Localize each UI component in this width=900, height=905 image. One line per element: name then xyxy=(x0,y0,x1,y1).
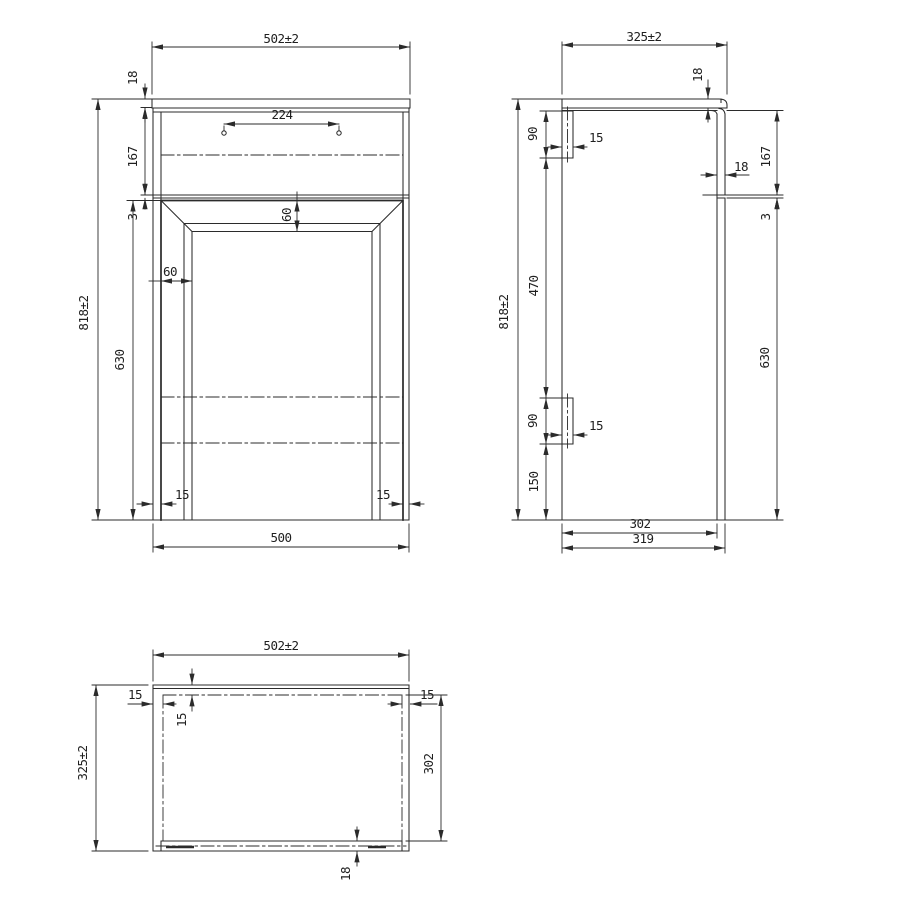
dim-side-hanger-bottom-depth: 15 xyxy=(589,418,603,433)
dim-front-overall-height: 818±2 xyxy=(76,295,91,330)
hole-stems xyxy=(224,126,339,131)
plan-panel-hidden-lines xyxy=(163,695,402,841)
dim-plan-depth: 325±2 xyxy=(75,745,90,780)
side-view: 325±2 18 90 15 167 18 3 818±2 470 90 15 xyxy=(496,29,783,553)
dim-plan-door-thickness: 18 xyxy=(338,867,353,881)
dim-front-upper-height: 167 xyxy=(125,146,140,167)
ext-lines xyxy=(540,111,562,158)
divider-lines xyxy=(153,195,409,198)
ext-lines xyxy=(141,99,153,195)
door-inner-panel xyxy=(192,232,372,521)
dim-plan-inner-depth: 302 xyxy=(421,753,436,774)
dim-side-depth-top: 325±2 xyxy=(626,29,661,44)
front-molding xyxy=(711,109,725,196)
dim-side-body-depth: 319 xyxy=(632,531,653,546)
dim-front-gap: 3 xyxy=(125,213,140,220)
dim-front-side-reveal-right: 15 xyxy=(376,487,390,502)
ext-lines xyxy=(512,99,562,520)
ext-lines xyxy=(152,42,410,94)
front-view: 502±2 224 18 167 3 818±2 630 60 60 15 15 xyxy=(76,31,424,552)
ext-lines xyxy=(92,99,153,520)
dim-front-door-height: 630 xyxy=(112,349,127,370)
dim-front-body-width: 500 xyxy=(270,530,291,545)
dim-plan-width: 502±2 xyxy=(263,638,298,653)
ext-lines xyxy=(92,685,148,851)
ext-lines xyxy=(540,398,562,444)
dim-front-width-top: 502±2 xyxy=(263,31,298,46)
dim-side-inner-depth: 302 xyxy=(629,516,650,531)
dim-side-door-thickness: 18 xyxy=(734,159,748,174)
plan-view: 502±2 325±2 15 15 15 302 18 xyxy=(75,638,447,881)
dim-front-side-reveal-left: 15 xyxy=(175,487,189,502)
dim-front-hole-spacing: 224 xyxy=(271,107,292,122)
plan-outer-outline xyxy=(153,685,409,851)
dim-front-frame-top: 60 xyxy=(279,208,294,222)
body-outline xyxy=(562,99,717,520)
dim-side-door-height: 630 xyxy=(757,347,772,368)
technical-drawing: 502±2 224 18 167 3 818±2 630 60 60 15 15 xyxy=(0,0,900,900)
dim-plan-panel-left: 15 xyxy=(128,687,142,702)
dim-side-counter-thickness: 18 xyxy=(690,68,705,82)
fixing-hole-right xyxy=(337,131,341,135)
fixing-hole-left xyxy=(222,131,226,135)
dim-side-hanger-bottom-height: 90 xyxy=(525,414,540,428)
molding-bottom xyxy=(703,195,725,198)
technical-drawing-page: 502±2 224 18 167 3 818±2 630 60 60 15 15 xyxy=(0,0,900,900)
dim-plan-panel-back: 15 xyxy=(174,713,189,727)
counter-profile xyxy=(562,99,727,108)
dim-front-counter-thickness: 18 xyxy=(125,71,140,85)
cabinet-sides xyxy=(153,108,409,520)
dim-side-hanger-bottom-offset: 150 xyxy=(526,471,541,492)
dim-front-frame-side: 60 xyxy=(163,264,177,279)
dim-side-overall-height: 818±2 xyxy=(496,294,511,329)
dim-side-gap: 3 xyxy=(758,213,773,220)
door-side-profile xyxy=(717,198,725,520)
dim-plan-panel-right: 15 xyxy=(420,687,434,702)
door-outline xyxy=(161,201,403,521)
dim-side-upper-height: 167 xyxy=(758,146,773,167)
door-bevel-line xyxy=(184,224,380,521)
ext-lines xyxy=(725,111,783,196)
dim-side-hanger-top-depth: 15 xyxy=(589,130,603,145)
ext-lines xyxy=(717,198,783,520)
dim-side-hanger-spacing: 470 xyxy=(526,275,541,296)
dim-side-hanger-top-height: 90 xyxy=(525,127,540,141)
inner-panel-edges xyxy=(161,112,403,520)
